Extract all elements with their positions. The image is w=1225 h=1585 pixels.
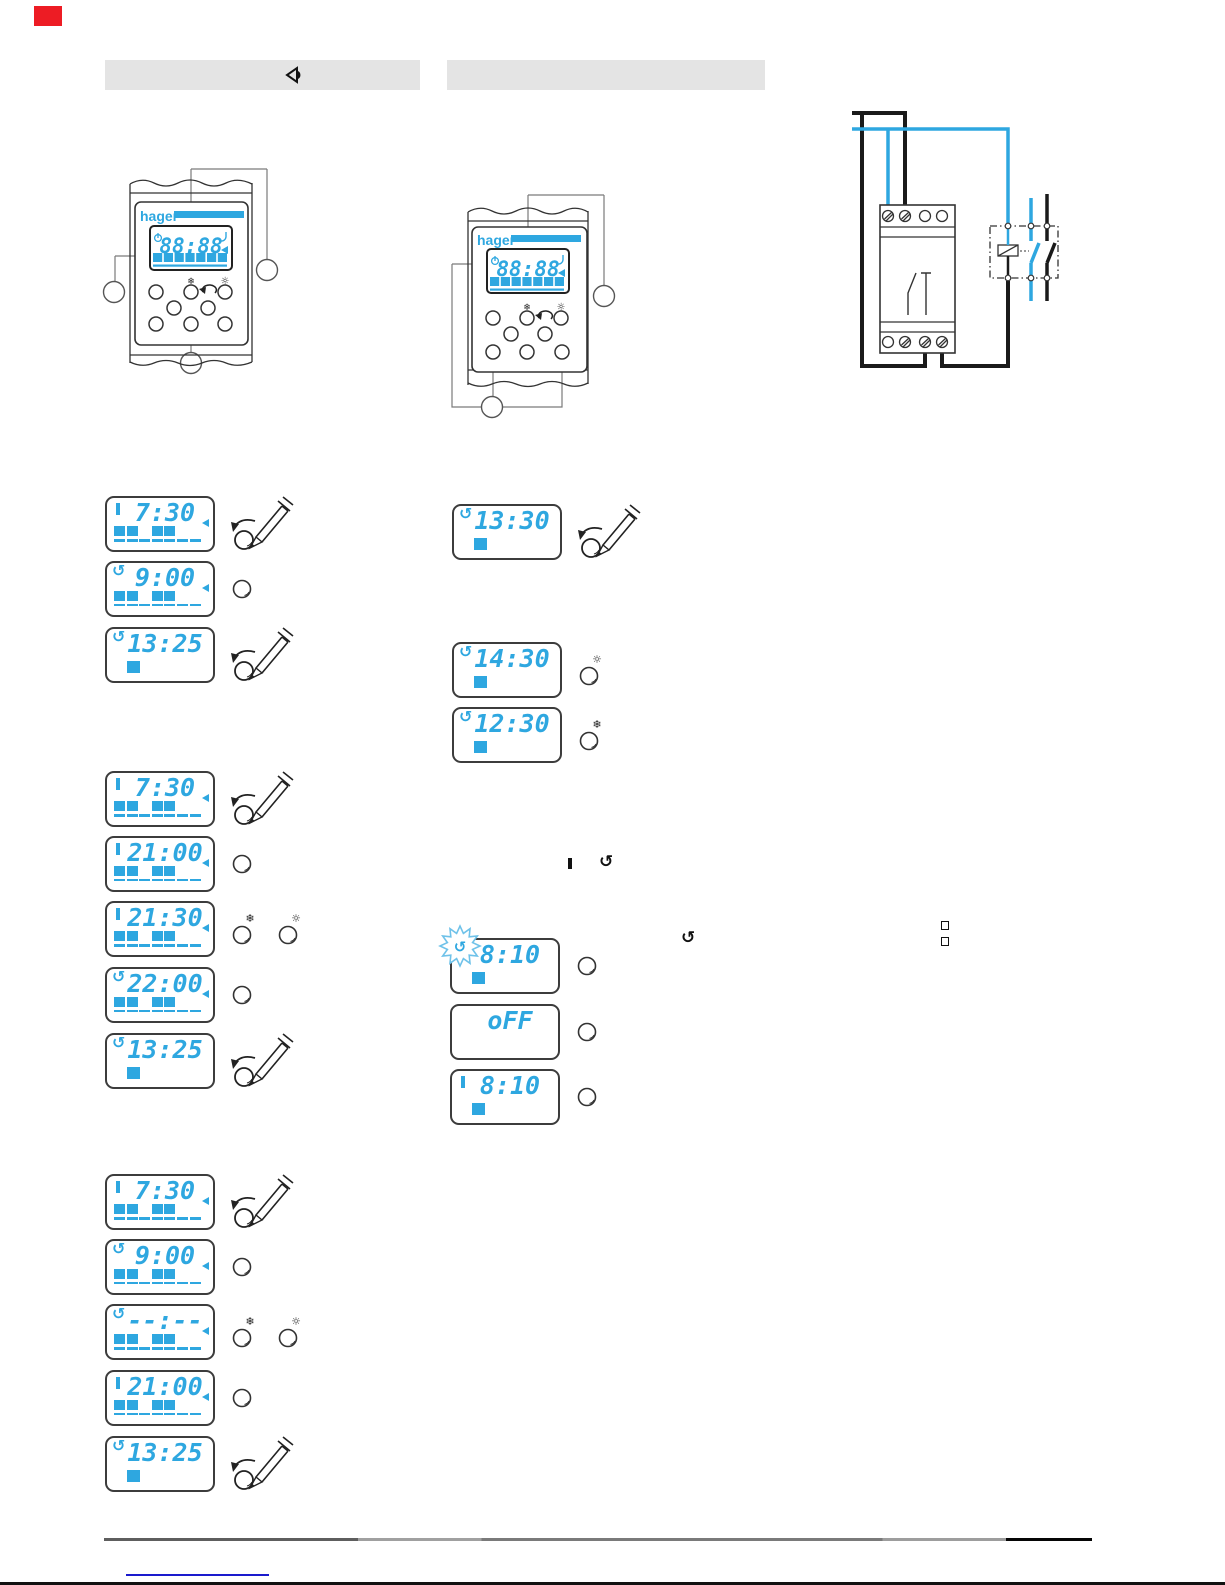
callout-circle-right — [257, 260, 278, 281]
lcd-arrow-left-icon — [202, 1393, 209, 1401]
day-marker — [127, 1413, 138, 1416]
lcd-day-blocks — [107, 1372, 213, 1424]
lcd-step-groupB-1: 7:30 — [105, 770, 295, 828]
day-marker — [114, 1282, 125, 1285]
timer-device-front-2: hager 88:88 ❄ ☼ — [435, 185, 665, 435]
lcd-step-groupB-4: ↺ 22:00 — [105, 967, 255, 1023]
snowflake-icon: ❄ — [523, 303, 531, 313]
day-marker — [152, 604, 163, 607]
action-icons — [229, 495, 295, 553]
lcd-day-blocks — [107, 838, 213, 890]
day-marker — [139, 1282, 150, 1285]
lcd-arrow-left-icon — [202, 990, 209, 998]
lcd-step-groupM-3: ↺ 12:30 ❄ — [452, 707, 610, 763]
day-block — [164, 1334, 175, 1344]
day-block — [114, 801, 125, 811]
day-marker — [139, 814, 150, 817]
day-marker — [114, 1347, 125, 1350]
day-marker — [152, 1010, 163, 1013]
lcd-day-blocks — [107, 1306, 213, 1358]
lcd-step-groupN-3: 8:10 — [450, 1069, 600, 1125]
press-button-icon — [229, 1385, 255, 1411]
lcd-step-groupC-5: ↺ 13:25 — [105, 1435, 295, 1493]
day-block — [472, 972, 485, 984]
day-block — [152, 1400, 163, 1410]
svg-text:❄: ❄ — [245, 912, 254, 925]
day-block — [114, 1400, 125, 1410]
lcd-display: ↺ 8:10 — [450, 938, 560, 994]
snow-button-icon: ❄ — [576, 717, 610, 753]
day-marker — [127, 1347, 138, 1350]
svg-text:☼: ☼ — [592, 653, 602, 666]
lcd-step-groupN-1: ↺ 8:10 — [450, 938, 600, 994]
action-icons — [229, 1385, 255, 1411]
lcd-step-groupC-1: 7:30 — [105, 1173, 295, 1231]
action-icons — [229, 1254, 255, 1280]
svg-text:❄: ❄ — [592, 718, 601, 731]
lcd-day-blocks — [452, 1071, 558, 1123]
lcd-arrow-left-icon — [202, 794, 209, 802]
day-marker — [164, 1010, 175, 1013]
action-icons — [229, 851, 255, 877]
press-button-icon — [574, 1019, 600, 1045]
day-block — [152, 1269, 163, 1279]
knob-pencil-icon — [229, 495, 295, 553]
day-marker — [190, 814, 201, 817]
lcd-day-blocks — [107, 498, 213, 550]
lcd-arrow-left-icon — [202, 859, 209, 867]
day-marker — [177, 1010, 188, 1013]
press-button-icon — [574, 1084, 600, 1110]
day-marker — [190, 1217, 201, 1220]
lcd-display: ↺ 22:00 — [105, 967, 215, 1023]
lcd-display: 21:00 — [105, 836, 215, 892]
day-block — [127, 591, 138, 601]
brand-bar — [511, 235, 581, 242]
red-page-marker — [34, 6, 62, 26]
day-marker — [152, 944, 163, 947]
day-block — [127, 801, 138, 811]
lcd-step-groupB-5: ↺ 13:25 — [105, 1032, 295, 1090]
day-marker — [152, 1413, 163, 1416]
press-button-icon — [229, 982, 255, 1008]
svg-text:☼: ☼ — [291, 1315, 301, 1328]
day-block — [127, 1334, 138, 1344]
svg-text:↺: ↺ — [454, 938, 467, 956]
lcd-arrow-left-icon — [202, 1197, 209, 1205]
day-marker — [139, 879, 150, 882]
lcd-step-groupC-2: ↺ 9:00 — [105, 1239, 255, 1295]
lcd-arrow-left-icon — [202, 1327, 209, 1335]
day-marker — [177, 1282, 188, 1285]
day-block — [152, 1334, 163, 1344]
day-block — [127, 526, 138, 536]
knob-pencil-icon — [229, 770, 295, 828]
day-block — [127, 1269, 138, 1279]
day-marker — [177, 1217, 188, 1220]
day-marker — [114, 1010, 125, 1013]
day-block — [152, 997, 163, 1007]
day-marker — [177, 814, 188, 817]
brand-bar — [174, 211, 244, 218]
day-marker — [114, 879, 125, 882]
day-block — [164, 931, 175, 941]
action-icons: ❄ — [576, 717, 610, 753]
day-block — [152, 526, 163, 536]
day-marker — [164, 814, 175, 817]
callout-circle-left — [104, 282, 125, 303]
lcd-display: 7:30 — [105, 496, 215, 552]
action-icons — [574, 953, 600, 979]
lcd-step-groupA-3: ↺ 13:25 — [105, 626, 295, 684]
day-marker — [114, 539, 125, 542]
day-marker — [164, 1347, 175, 1350]
lcd-day-blocks — [107, 1241, 213, 1293]
lcd-display: 21:00 — [105, 1370, 215, 1426]
day-marker — [190, 1413, 201, 1416]
lcd-day-blocks — [107, 1438, 213, 1490]
day-marker — [114, 604, 125, 607]
day-block — [127, 1204, 138, 1214]
relay-coil — [998, 226, 1029, 278]
day-block-row — [153, 253, 227, 267]
lcd-step-groupM-2: ↺ 14:30 ☼ — [452, 642, 610, 698]
day-marker — [127, 604, 138, 607]
lcd-step-groupA-2: ↺ 9:00 — [105, 561, 255, 617]
bullet-square — [941, 921, 949, 930]
day-marker — [152, 1217, 163, 1220]
snowflake-icon: ❄ — [187, 277, 195, 287]
day-marker — [177, 944, 188, 947]
action-icons — [229, 1032, 295, 1090]
day-marker — [164, 604, 175, 607]
action-icons — [229, 576, 255, 602]
day-block — [474, 538, 487, 550]
day-block — [114, 997, 125, 1007]
day-block-row — [490, 277, 564, 291]
day-block — [114, 1334, 125, 1344]
snow-button-icon: ❄ — [229, 1314, 263, 1350]
day-marker — [127, 1010, 138, 1013]
action-icons — [229, 1173, 295, 1231]
lcd-arrow-left-icon — [202, 924, 209, 932]
hager-logo: hager — [140, 208, 179, 224]
sun-button-icon: ☼ — [576, 652, 610, 688]
day-block — [114, 1269, 125, 1279]
lcd-display: ↺ 13:25 — [105, 1033, 215, 1089]
wiring-diagram — [820, 95, 1080, 395]
lcd-day-blocks — [454, 506, 560, 558]
day-marker — [114, 814, 125, 817]
day-block — [114, 591, 125, 601]
press-button-icon — [574, 953, 600, 979]
lcd-arrow-left-icon — [202, 519, 209, 527]
day-block — [164, 1400, 175, 1410]
lcd-display: ↺ 13:30 — [452, 504, 562, 560]
lcd-display: 7:30 — [105, 771, 215, 827]
cycle-symbol: ↺ — [681, 930, 695, 947]
day-marker — [127, 539, 138, 542]
black-switch-wire — [1047, 194, 1055, 301]
footer-rule — [104, 1538, 1092, 1541]
lcd-arrow-left-icon — [202, 584, 209, 592]
day-marker — [190, 539, 201, 542]
day-block — [164, 801, 175, 811]
day-marker — [164, 944, 175, 947]
lcd-display: 8:10 — [450, 1069, 560, 1125]
press-button-icon — [229, 851, 255, 877]
day-marker — [139, 604, 150, 607]
sun-button-icon: ☼ — [275, 1314, 309, 1350]
sun-icon: ☼ — [221, 276, 230, 287]
action-icons: ☼ — [576, 652, 610, 688]
day-marker — [190, 1282, 201, 1285]
day-marker — [164, 1282, 175, 1285]
day-block — [472, 1103, 485, 1115]
day-block — [114, 931, 125, 941]
lcd-step-groupN-2: oFF — [450, 1004, 600, 1060]
snow-button-icon: ❄ — [229, 911, 263, 947]
day-marker — [152, 1282, 163, 1285]
day-marker — [139, 1217, 150, 1220]
day-marker — [127, 944, 138, 947]
day-marker — [177, 879, 188, 882]
flashing-starburst-icon: ↺ — [438, 924, 482, 968]
day-marker — [114, 944, 125, 947]
lcd-day-blocks — [107, 773, 213, 825]
day-marker — [164, 539, 175, 542]
day-marker — [164, 1217, 175, 1220]
callout-circle-right — [594, 286, 615, 307]
day-block — [127, 1400, 138, 1410]
day-marker — [127, 1282, 138, 1285]
day-block — [152, 1204, 163, 1214]
manual-override-arrow-icon — [284, 64, 304, 86]
svg-text:❄: ❄ — [245, 1315, 254, 1328]
on-symbol — [568, 858, 572, 869]
knob-pencil-icon — [229, 1032, 295, 1090]
day-block — [127, 866, 138, 876]
lcd-display: ↺ 13:25 — [105, 1436, 215, 1492]
day-marker — [190, 1010, 201, 1013]
lcd-display: ↺ 13:25 — [105, 627, 215, 683]
day-marker — [177, 604, 188, 607]
knob-pencil-icon — [229, 626, 295, 684]
action-icons — [229, 770, 295, 828]
day-marker — [152, 814, 163, 817]
lcd-day-blocks — [107, 903, 213, 955]
day-marker — [164, 879, 175, 882]
lcd-step-groupC-3: ↺ --:-- ❄ ☼ — [105, 1304, 309, 1360]
day-marker — [127, 879, 138, 882]
lcd-day-blocks — [107, 1176, 213, 1228]
knob-pencil-icon — [576, 503, 642, 561]
day-block — [114, 526, 125, 536]
press-button-icon — [229, 1254, 255, 1280]
action-icons: ❄ ☼ — [229, 1314, 309, 1350]
lcd-step-groupB-2: 21:00 — [105, 836, 255, 892]
day-block — [164, 1204, 175, 1214]
day-block — [164, 866, 175, 876]
day-marker — [114, 1217, 125, 1220]
lcd-display: 21:30 — [105, 901, 215, 957]
day-marker — [190, 604, 201, 607]
day-marker — [177, 1347, 188, 1350]
day-marker — [177, 539, 188, 542]
section-header-bar-2 — [447, 60, 765, 90]
knob-pencil-icon — [229, 1173, 295, 1231]
lcd-day-blocks — [107, 1035, 213, 1087]
day-block — [127, 661, 140, 673]
lcd-day-blocks — [107, 629, 213, 681]
day-block — [114, 1204, 125, 1214]
day-marker — [190, 944, 201, 947]
day-marker — [127, 1217, 138, 1220]
day-marker — [152, 879, 163, 882]
lcd-step-groupA-1: 7:30 — [105, 495, 295, 553]
day-block — [152, 866, 163, 876]
day-marker — [152, 539, 163, 542]
knob-pencil-icon — [229, 1435, 295, 1493]
day-marker — [190, 1347, 201, 1350]
day-marker — [177, 1413, 188, 1416]
lcd-display: ↺ 9:00 — [105, 561, 215, 617]
day-block — [164, 526, 175, 536]
callout-circle-bottom — [482, 397, 503, 418]
timer-device-front-1: hager 88:88 ❄ ☼ — [95, 150, 325, 390]
lcd-display: oFF — [450, 1004, 560, 1060]
day-marker — [139, 1347, 150, 1350]
lcd-step-groupM-1: ↺ 13:30 — [452, 503, 642, 561]
day-block — [127, 997, 138, 1007]
lcd-display: ↺ 14:30 — [452, 642, 562, 698]
day-block — [127, 1067, 140, 1079]
day-block — [164, 1269, 175, 1279]
hager-logo: hager — [477, 232, 516, 248]
lcd-display: ↺ 12:30 — [452, 707, 562, 763]
lcd-day-blocks — [107, 563, 213, 615]
day-block — [474, 741, 487, 753]
action-icons — [229, 626, 295, 684]
day-block — [474, 676, 487, 688]
day-block — [114, 866, 125, 876]
day-marker — [190, 879, 201, 882]
lcd-display: ↺ 9:00 — [105, 1239, 215, 1295]
lcd-step-groupC-4: 21:00 — [105, 1370, 255, 1426]
sun-icon: ☼ — [557, 302, 566, 313]
day-block — [164, 997, 175, 1007]
sun-button-icon: ☼ — [275, 911, 309, 947]
day-block — [127, 1470, 140, 1482]
day-block — [152, 591, 163, 601]
day-block — [152, 931, 163, 941]
day-marker — [152, 1347, 163, 1350]
footer-link-underline[interactable] — [126, 1574, 269, 1576]
lcd-display: 7:30 — [105, 1174, 215, 1230]
day-block — [127, 931, 138, 941]
day-marker — [164, 1413, 175, 1416]
day-marker — [127, 814, 138, 817]
lcd-arrow-left-icon — [202, 1262, 209, 1270]
lcd-day-blocks — [454, 709, 560, 761]
day-marker — [139, 944, 150, 947]
action-icons — [576, 503, 642, 561]
cycle-symbol: ↺ — [599, 854, 613, 871]
day-marker — [114, 1413, 125, 1416]
section-header-bar-1 — [105, 60, 420, 90]
day-marker — [139, 1010, 150, 1013]
day-marker — [139, 539, 150, 542]
action-icons — [574, 1019, 600, 1045]
action-icons: ❄ ☼ — [229, 911, 309, 947]
bullet-square — [941, 937, 949, 946]
day-block — [164, 591, 175, 601]
svg-text:☼: ☼ — [291, 912, 301, 925]
day-marker — [139, 1413, 150, 1416]
day-block — [152, 801, 163, 811]
action-icons — [229, 1435, 295, 1493]
lcd-day-blocks — [107, 969, 213, 1021]
lcd-day-blocks — [454, 644, 560, 696]
lcd-display: ↺ --:-- — [105, 1304, 215, 1360]
action-icons — [574, 1084, 600, 1110]
action-icons — [229, 982, 255, 1008]
lcd-step-groupB-3: 21:30 ❄ ☼ — [105, 901, 309, 957]
press-button-icon — [229, 576, 255, 602]
lcd-day-blocks — [452, 1006, 558, 1058]
